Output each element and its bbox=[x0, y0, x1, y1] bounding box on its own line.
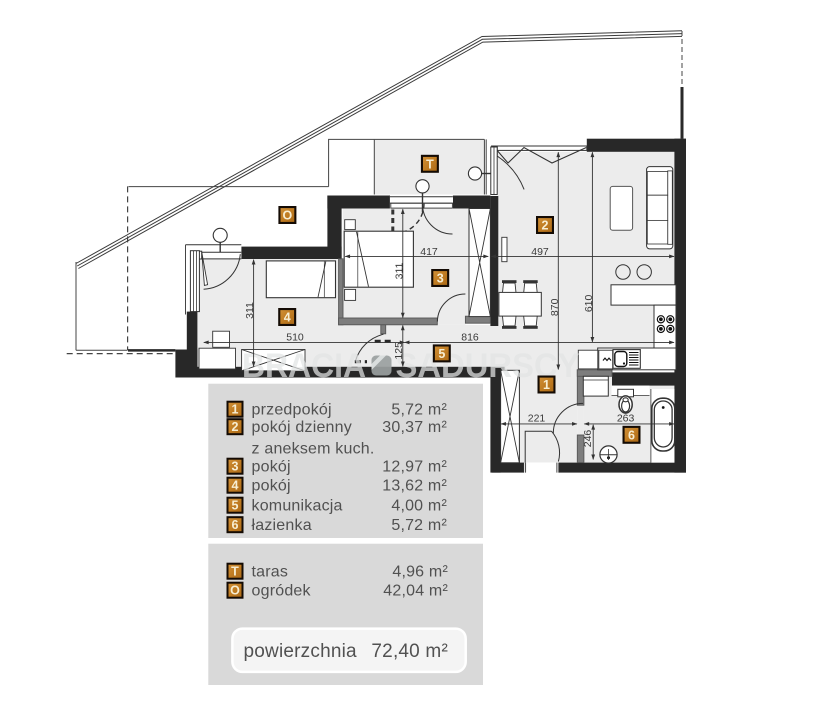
svg-text:221: 221 bbox=[528, 412, 546, 424]
svg-text:powierzchnia: powierzchnia bbox=[244, 641, 358, 662]
svg-text:510: 510 bbox=[286, 332, 304, 344]
svg-text:łazienka: łazienka bbox=[252, 517, 312, 534]
svg-text:497: 497 bbox=[531, 246, 549, 258]
svg-text:4: 4 bbox=[232, 479, 239, 493]
svg-text:311: 311 bbox=[244, 302, 256, 319]
svg-text:610: 610 bbox=[583, 294, 595, 312]
svg-text:2: 2 bbox=[232, 420, 239, 434]
svg-text:417: 417 bbox=[420, 246, 438, 258]
svg-text:pokój dzienny: pokój dzienny bbox=[252, 419, 352, 436]
svg-text:5,72 m²: 5,72 m² bbox=[391, 402, 447, 419]
svg-text:z aneksem kuch.: z aneksem kuch. bbox=[252, 441, 375, 458]
svg-text:BRACIA: BRACIA bbox=[242, 347, 366, 385]
svg-text:311: 311 bbox=[393, 262, 405, 279]
svg-text:2: 2 bbox=[542, 219, 549, 233]
svg-text:5: 5 bbox=[438, 347, 445, 361]
svg-text:T: T bbox=[426, 157, 434, 171]
svg-text:12,97 m²: 12,97 m² bbox=[382, 459, 447, 476]
svg-text:komunikacja: komunikacja bbox=[252, 498, 343, 515]
svg-text:4: 4 bbox=[284, 311, 291, 325]
svg-text:O: O bbox=[230, 584, 240, 598]
svg-text:1: 1 bbox=[543, 378, 550, 392]
svg-text:taras: taras bbox=[252, 564, 289, 581]
svg-text:13,62 m²: 13,62 m² bbox=[382, 478, 447, 495]
svg-text:ogródek: ogródek bbox=[252, 583, 312, 600]
svg-text:O: O bbox=[283, 209, 293, 223]
svg-text:42,04 m²: 42,04 m² bbox=[383, 583, 448, 600]
svg-text:5,72 m²: 5,72 m² bbox=[391, 517, 447, 534]
svg-text:6: 6 bbox=[628, 428, 635, 442]
svg-text:263: 263 bbox=[617, 412, 635, 424]
svg-text:30,37 m²: 30,37 m² bbox=[382, 419, 447, 436]
svg-text:816: 816 bbox=[461, 332, 479, 344]
svg-text:przedpokój: przedpokój bbox=[252, 402, 332, 419]
svg-text:T: T bbox=[231, 565, 239, 579]
svg-text:pokój: pokój bbox=[252, 459, 291, 476]
svg-text:4,96 m²: 4,96 m² bbox=[392, 564, 448, 581]
svg-text:246: 246 bbox=[582, 430, 594, 448]
svg-text:5: 5 bbox=[232, 499, 239, 513]
svg-text:3: 3 bbox=[437, 272, 444, 286]
svg-text:1: 1 bbox=[232, 403, 239, 417]
svg-text:pokój: pokój bbox=[252, 478, 291, 495]
svg-text:870: 870 bbox=[549, 298, 561, 316]
svg-text:6: 6 bbox=[232, 518, 239, 532]
svg-text:4,00 m²: 4,00 m² bbox=[391, 498, 447, 515]
svg-text:125: 125 bbox=[393, 342, 405, 360]
svg-text:3: 3 bbox=[232, 460, 239, 474]
svg-text:72,40 m²: 72,40 m² bbox=[371, 641, 448, 662]
